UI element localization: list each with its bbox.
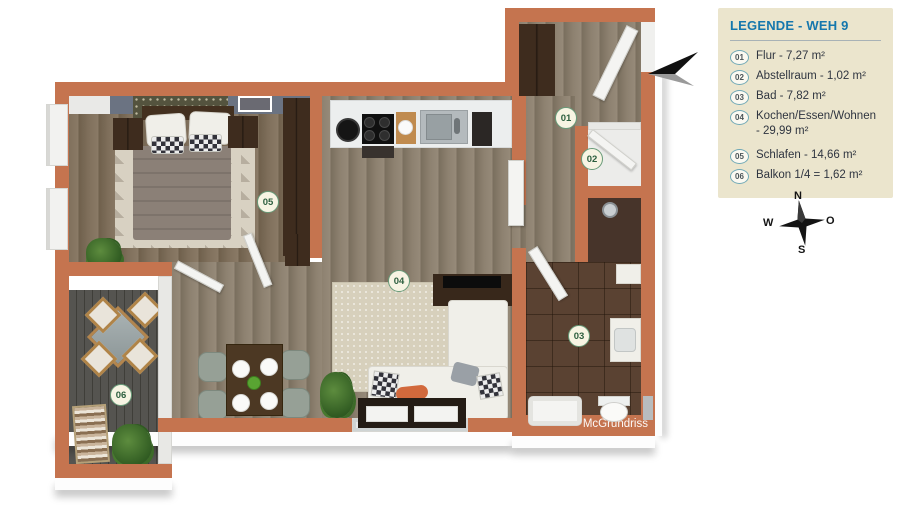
centerpiece-bowl [247, 376, 261, 390]
base-platform [55, 478, 172, 490]
cooking-pot [336, 118, 360, 142]
bathroom-cabinet [616, 264, 641, 284]
nightstand [228, 116, 258, 148]
balcony-wall [55, 464, 172, 478]
potted-plant [320, 372, 354, 418]
oven [362, 146, 394, 158]
dining-chair [198, 390, 228, 420]
legend-badge: 03 [730, 90, 749, 105]
compass-east-label: O [826, 215, 835, 227]
burner-icon [364, 117, 375, 128]
plate [398, 120, 413, 135]
faucet [454, 118, 460, 134]
dining-chair [280, 350, 310, 380]
table-tray [366, 406, 408, 422]
legend-badge: 02 [730, 70, 749, 85]
legend-label: Schlafen - 14,66 m² [756, 148, 881, 164]
legend-badge: 06 [730, 169, 749, 184]
wall [505, 20, 519, 96]
wall [310, 96, 322, 258]
bed-accent-pillow [151, 136, 184, 154]
wall [512, 248, 526, 418]
dining-chair [280, 388, 310, 418]
balcony-wall [55, 276, 69, 478]
wall [55, 82, 512, 96]
legend-item-abstellraum: 02 Abstellraum - 1,02 m² [730, 69, 881, 85]
legend-badge: 04 [730, 110, 749, 125]
base-platform [512, 436, 655, 448]
shower-head-icon [602, 202, 618, 218]
plate [260, 358, 278, 376]
cooktop [362, 114, 394, 144]
compass-rose-icon [778, 199, 826, 247]
plate [232, 360, 250, 378]
direction-arrow-icon [648, 52, 700, 88]
legend-item-flur: 01 Flur - 7,27 m² [730, 49, 881, 65]
sofa-pillow [476, 372, 504, 400]
room-badge-balkon: 06 [110, 384, 132, 406]
legend-item-schlafen: 05 Schlafen - 14,66 m² [730, 148, 881, 164]
room-badge-flur: 01 [555, 107, 577, 129]
room-badge-schlafen: 05 [257, 191, 279, 213]
legend-item-bad: 03 Bad - 7,82 m² [730, 89, 881, 105]
legend-divider [730, 40, 881, 41]
legend-label: Abstellraum - 1,02 m² [756, 69, 881, 85]
compass-south-label: S [798, 244, 805, 256]
plate [260, 392, 278, 410]
legend-label: Balkon 1/4 = 1,62 m² [756, 168, 881, 184]
compass-west-label: W [763, 217, 773, 229]
potted-plant [112, 424, 152, 466]
wall-picture [238, 96, 272, 112]
legend-title: LEGENDE - WEH 9 [730, 18, 881, 33]
room-badge-bad: 03 [568, 325, 590, 347]
sink-basin [426, 114, 452, 140]
dining-chair [198, 352, 228, 382]
burner-icon [379, 130, 390, 141]
legend-badge: 05 [730, 149, 749, 164]
legend-panel: LEGENDE - WEH 9 01 Flur - 7,27 m² 02 Abs… [718, 8, 893, 198]
wall [583, 186, 641, 198]
deck-lounger [72, 404, 110, 464]
bedroom-wardrobe [283, 98, 310, 256]
shower-niche [643, 396, 653, 420]
plate [232, 394, 250, 412]
window [46, 104, 68, 166]
bed-accent-pillow [189, 134, 222, 152]
coffee-machine [472, 112, 492, 146]
sideboard [285, 234, 310, 266]
washbasin [614, 328, 636, 352]
wall [158, 418, 352, 432]
window [46, 188, 68, 250]
partition-wall [588, 122, 641, 130]
wall [468, 418, 512, 432]
wall [641, 72, 655, 432]
legend-label: Kochen/Essen/Wohnen - 29,99 m² [756, 109, 881, 139]
bathtub [528, 396, 582, 426]
room-badge-wohnen: 04 [388, 270, 410, 292]
tv [443, 276, 501, 288]
compass-north-label: N [794, 190, 802, 202]
legend-badge: 01 [730, 50, 749, 65]
hall-wardrobe [519, 24, 555, 96]
living-hall-door [508, 160, 524, 226]
base-platform [655, 72, 662, 436]
bedroom-wall-face [69, 96, 110, 114]
burner-icon [364, 130, 375, 141]
burner-icon [379, 117, 390, 128]
legend-label: Flur - 7,27 m² [756, 49, 881, 65]
wall [55, 262, 172, 276]
legend-label: Bad - 7,82 m² [756, 89, 881, 105]
table-tray [414, 406, 458, 422]
legend-item-wohnen: 04 Kochen/Essen/Wohnen - 29,99 m² [730, 109, 881, 139]
toilet [600, 402, 628, 422]
legend-item-balkon: 06 Balkon 1/4 = 1,62 m² [730, 168, 881, 184]
wall [505, 8, 655, 22]
balcony-glass-wall [158, 276, 172, 464]
room-badge-abstellraum: 02 [581, 148, 603, 170]
nightstand [113, 118, 143, 150]
floor-plan-page: McGrundriss 01 02 03 04 05 06 LEGENDE - … [0, 0, 900, 506]
bed-duvet [133, 146, 231, 240]
